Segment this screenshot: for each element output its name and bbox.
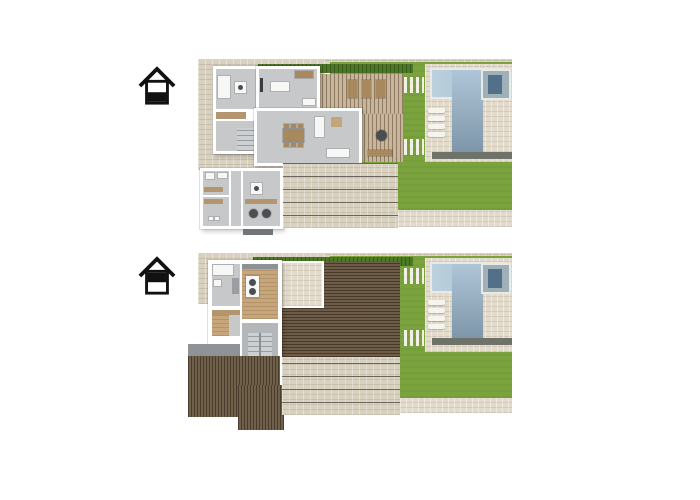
stepping-stones: [404, 139, 424, 155]
dining-room-block: [254, 108, 362, 166]
chair: [291, 124, 296, 128]
lower-border-path: [400, 398, 512, 413]
sink: [218, 173, 227, 178]
wall-stub: [243, 229, 273, 235]
vanity: [204, 187, 223, 192]
terraced-steps: [283, 163, 398, 228]
stepping-stones: [404, 330, 424, 346]
sofa: [295, 71, 313, 78]
counter: [204, 199, 223, 204]
house-upper-floor-icon[interactable]: [138, 254, 176, 300]
toilet: [206, 173, 214, 179]
pool-lounger: [428, 116, 445, 121]
basin: [249, 209, 258, 218]
deck-lounger: [362, 80, 371, 98]
basin: [262, 209, 271, 218]
pool-deep-end: [452, 70, 483, 152]
bedroom-wing: [213, 66, 260, 154]
stove: [246, 276, 259, 297]
bathroom: [212, 264, 240, 306]
kitchen: [242, 264, 278, 319]
pool-lounger: [428, 324, 445, 329]
pool-lounger: [428, 316, 445, 321]
pool-lounger: [428, 124, 445, 129]
retaining-wall: [432, 152, 512, 159]
coffee-table: [271, 82, 289, 91]
burner: [249, 288, 256, 295]
pool-lounger: [428, 132, 445, 137]
deck-lounger: [348, 80, 357, 98]
chair: [298, 143, 303, 147]
tv: [260, 78, 263, 92]
upper-floor-plan: [188, 252, 512, 432]
spa: [483, 265, 509, 292]
wall-divider: [229, 171, 231, 226]
bathroom-wing-interior: [203, 171, 280, 226]
washer: [251, 183, 262, 194]
stepping-stones: [404, 77, 424, 93]
retaining-wall: [432, 338, 512, 345]
side-table: [235, 82, 246, 93]
house-icon-glyph: [138, 64, 176, 110]
spa-water: [488, 269, 502, 288]
living-room: [259, 69, 317, 111]
bed: [218, 76, 230, 98]
pool-deep-end: [452, 264, 483, 338]
bathroom-wing: [200, 168, 283, 229]
wall-divider: [203, 195, 229, 197]
deck-lounger: [376, 80, 385, 98]
sideboard: [303, 99, 315, 105]
chair: [298, 124, 303, 128]
roof-terrace: [279, 263, 322, 306]
dining-table: [283, 129, 304, 142]
lower-border-path: [398, 210, 512, 227]
pool-lounger: [428, 300, 445, 305]
burner: [249, 279, 256, 286]
lamp: [238, 85, 243, 90]
wall-divider: [241, 171, 243, 226]
laundry-counter: [245, 199, 277, 204]
house-icon-glyph: [138, 254, 176, 300]
pergola-deck-side: [360, 114, 403, 162]
terraced-steps: [282, 357, 400, 415]
cabinet: [315, 117, 324, 137]
ground-floor-plan: [188, 58, 512, 232]
chair: [284, 124, 289, 128]
staircase: [237, 128, 255, 151]
sofa: [327, 149, 349, 157]
house-ground-floor-icon[interactable]: [138, 64, 176, 110]
hall-room: [212, 310, 240, 336]
spa: [483, 71, 509, 98]
dining-room: [257, 111, 359, 163]
kitchen-counter: [242, 264, 278, 269]
spa-water: [488, 75, 502, 94]
deck-bench: [368, 150, 392, 156]
chair: [291, 143, 296, 147]
rug: [331, 117, 342, 127]
shower: [232, 278, 239, 294]
bathtub: [213, 265, 233, 275]
living-room-block: [256, 66, 320, 114]
pool-lounger: [428, 108, 445, 113]
washer-door: [254, 186, 259, 191]
floor-plan-viewer: [0, 0, 700, 500]
bath-mat: [209, 217, 213, 220]
chair: [284, 143, 289, 147]
slatted-roof-extension: [238, 385, 284, 430]
stepping-stones: [404, 268, 424, 284]
bath-mat: [215, 217, 219, 220]
closet: [216, 112, 246, 119]
pool-lounger: [428, 308, 445, 313]
bedroom: [216, 69, 257, 109]
toilet: [214, 280, 221, 286]
hall-floor: [229, 315, 240, 336]
deck-table: [376, 130, 387, 141]
